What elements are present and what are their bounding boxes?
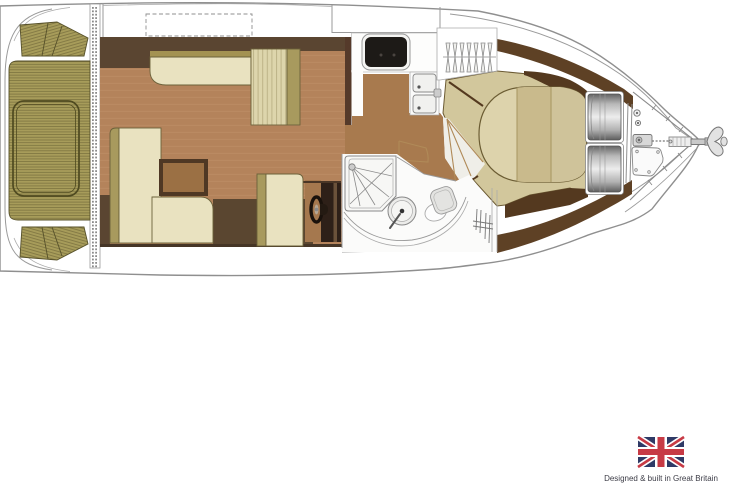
svg-text:Designed & built in Great Brit: Designed & built in Great Britain [604,474,718,483]
